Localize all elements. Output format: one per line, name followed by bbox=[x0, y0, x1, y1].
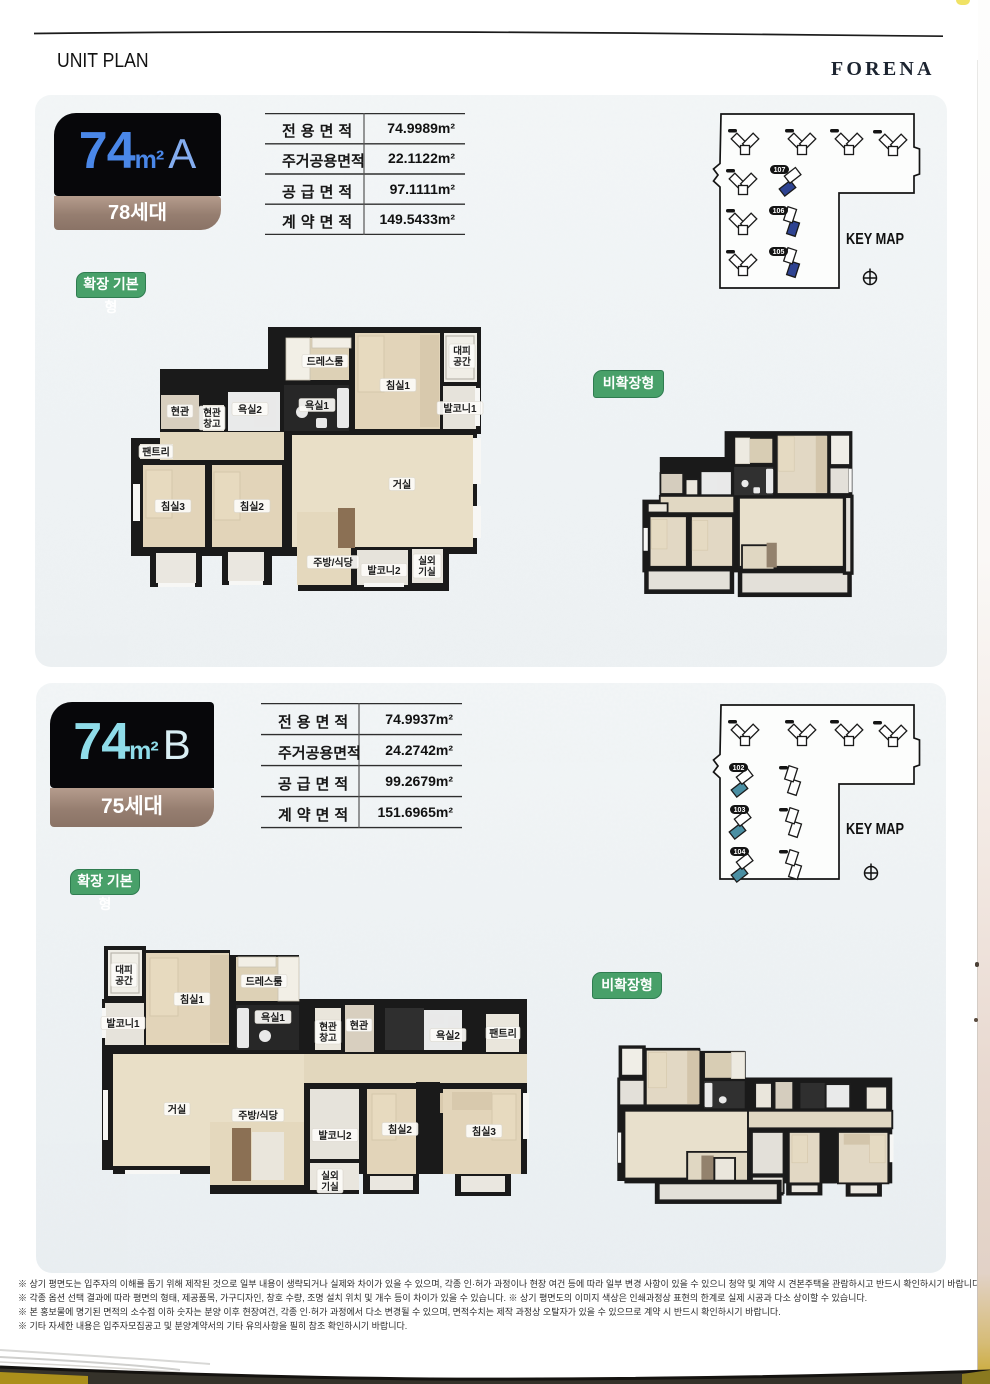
svg-text:팬트리: 팬트리 bbox=[489, 1027, 517, 1040]
svg-text:창고: 창고 bbox=[319, 1032, 337, 1044]
svg-text:기실: 기실 bbox=[418, 566, 436, 578]
svg-text:거실: 거실 bbox=[393, 478, 411, 491]
svg-text:창고: 창고 bbox=[203, 418, 221, 430]
svg-text:발코니2: 발코니2 bbox=[318, 1129, 352, 1142]
svg-text:105: 105 bbox=[773, 249, 785, 256]
svg-text:침실2: 침실2 bbox=[240, 500, 264, 513]
svg-text:침실3: 침실3 bbox=[472, 1125, 496, 1138]
svg-text:거실: 거실 bbox=[168, 1103, 186, 1116]
svg-text:대피: 대피 bbox=[115, 964, 132, 976]
svg-text:KEY MAP: KEY MAP bbox=[846, 231, 904, 249]
svg-text:107: 107 bbox=[774, 167, 786, 174]
svg-text:침실1: 침실1 bbox=[386, 379, 410, 392]
svg-text:공간: 공간 bbox=[453, 356, 471, 368]
svg-text:현관: 현관 bbox=[319, 1021, 337, 1033]
svg-text:KEY MAP: KEY MAP bbox=[846, 821, 904, 839]
svg-text:발코니1: 발코니1 bbox=[443, 402, 477, 415]
svg-text:실외: 실외 bbox=[418, 555, 435, 567]
svg-text:103: 103 bbox=[734, 807, 746, 814]
svg-text:주방/식당: 주방/식당 bbox=[238, 1109, 278, 1122]
svg-text:현관: 현관 bbox=[171, 405, 190, 418]
svg-text:욕실2: 욕실2 bbox=[238, 403, 262, 416]
svg-text:드레스룸: 드레스룸 bbox=[246, 975, 283, 988]
svg-text:발코니1: 발코니1 bbox=[106, 1017, 140, 1030]
svg-text:대피: 대피 bbox=[453, 345, 470, 357]
svg-text:드레스룸: 드레스룸 bbox=[307, 355, 344, 368]
svg-text:현관: 현관 bbox=[203, 407, 221, 419]
svg-text:기실: 기실 bbox=[321, 1181, 339, 1193]
svg-text:주방/식당: 주방/식당 bbox=[313, 556, 353, 569]
svg-text:공간: 공간 bbox=[115, 975, 133, 987]
svg-text:침실3: 침실3 bbox=[161, 500, 185, 513]
svg-text:106: 106 bbox=[773, 208, 785, 215]
svg-text:104: 104 bbox=[734, 849, 746, 856]
svg-text:욕실1: 욕실1 bbox=[305, 399, 329, 412]
svg-text:욕실2: 욕실2 bbox=[436, 1029, 460, 1042]
svg-text:침실2: 침실2 bbox=[388, 1123, 412, 1136]
svg-text:실외: 실외 bbox=[321, 1170, 338, 1182]
svg-text:팬트리: 팬트리 bbox=[142, 446, 170, 459]
svg-text:욕실1: 욕실1 bbox=[261, 1011, 285, 1024]
svg-text:침실1: 침실1 bbox=[180, 993, 204, 1006]
svg-text:현관: 현관 bbox=[350, 1019, 369, 1032]
svg-text:102: 102 bbox=[733, 765, 745, 772]
svg-text:발코니2: 발코니2 bbox=[367, 564, 401, 577]
